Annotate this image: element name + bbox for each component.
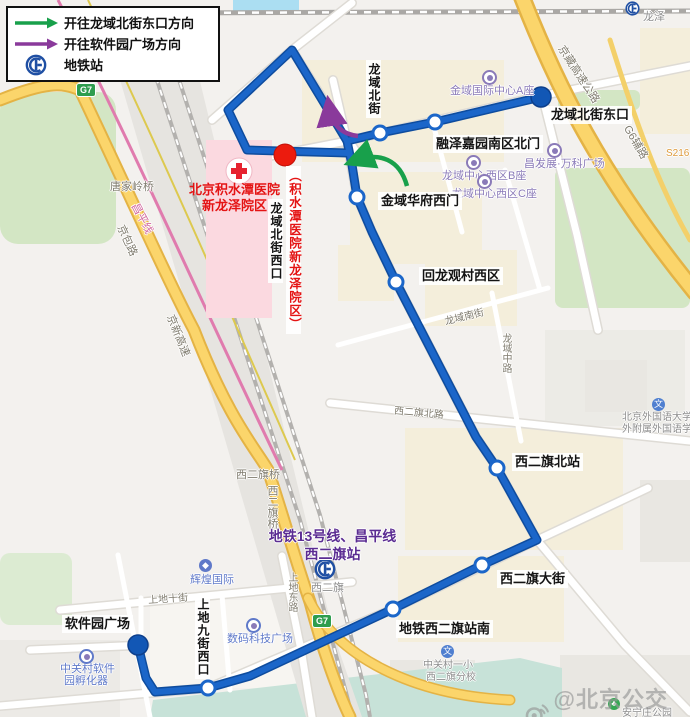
school-icon-zgc: 文 [441,645,454,658]
metro-station-note: 地铁13号线、昌平线 西二旗站 [250,527,415,563]
green-arrow-icon [8,17,64,29]
stop-label-ditiexierqinan: 地铁西二旗站南 [396,620,493,638]
purple-arrow-icon [8,38,64,50]
stop-label-xierqidajie: 西二旗大街 [497,570,568,588]
bg-label-shuma: 数码科技广场 [227,630,293,646]
metro-note-line2: 西二旗站 [250,545,415,563]
bus-route-map: 开往龙域北街东口方向 开往软件园广场方向 地铁站 龙域北街东口 融泽嘉园南区北门… [0,0,690,717]
stop-label-longyubeijie: 龙域北街 [366,60,381,118]
hospital-label-line2: 新龙泽院区 [189,198,280,214]
highlight-stop-marker-hospital [274,144,296,166]
bg-label-tangjialing-bridge: 唐家岭桥 [110,178,154,194]
bg-label-shangdi-east-road: 上地东路 [284,572,299,612]
bg-label-changfazhan: 昌发展·万科广场 [524,155,605,171]
stop-marker-rongzejiayuan [428,115,442,129]
legend-row-metro: 地铁站 [8,54,218,75]
bg-label-shangdi-10th-street: 上地十街 [148,589,189,607]
metro-station-icon-longze [625,1,640,21]
legend-label-west: 开往软件园广场方向 [64,34,181,53]
stop-marker-shangdijiujie [201,681,215,695]
hospital-label-line1: 北京积水潭医院 [189,182,280,198]
hospital-label: 北京积水潭医院 新龙泽院区 [186,181,283,215]
building-icon-changfazhan [547,143,562,158]
building-icon-shuma [246,618,261,633]
stop-marker-xierqibei [490,461,504,475]
stop-marker-xierqidajie [475,558,489,572]
bg-label-s216: S216 [666,148,689,159]
stop-label-rongzejiayuan: 融泽嘉园南区北门 [433,135,543,153]
bg-label-huihuang: 辉煌国际 [190,571,234,587]
bg-label-longyu-c: 龙域中心西区C座 [452,185,537,201]
bg-label-xierqi-bridge-vertical: 西二旗桥 [264,485,280,529]
stop-marker-jinyuhuafu [350,190,364,204]
bg-label-zgc-school-line2: 西二旗分校 [426,668,476,683]
building-icon-jinyu [482,70,497,85]
bg-label-bfs-line2: 外附属外国语学校 [622,420,690,435]
legend-row-west: 开往软件园广场方向 [8,33,218,54]
building-icon-incubator [79,649,94,664]
legend: 开往龙域北街东口方向 开往软件园广场方向 地铁站 [6,6,220,82]
terminus-marker-ruanjianyuan [128,635,148,655]
legend-label-metro: 地铁站 [64,55,103,74]
stop-label-ruanjianyuan: 软件园广场 [62,615,133,633]
watermark: @北京公交集团 [524,682,690,717]
stop-label-xierqibei: 西二旗北站 [512,453,583,471]
metro-note-line1: 地铁13号线、昌平线 [250,527,415,545]
building-icon-longyu-b [466,155,481,170]
school-icon-bfs: 文 [652,398,665,411]
highway-shield-g7-south: G7 [312,614,332,628]
weibo-icon [524,701,550,717]
watermark-text: @北京公交集团 [554,682,690,717]
stop-marker-ditiexierqinan [386,602,400,616]
legend-label-east: 开往龙域北街东口方向 [64,13,194,32]
building-icon-huihuang: ◆ [199,559,212,572]
stop-marker-longyubeijie [373,126,387,140]
bg-label-longyu-middle-road: 龙域中路 [498,333,513,373]
stop-label-shangdijiujie: 上地九街西口 [195,595,210,679]
stop-marker-huilongguancun [389,275,403,289]
stop-label-longyubeijiedongkou: 龙域北街东口 [548,106,632,124]
highway-shield-g7-nw: G7 [76,83,96,97]
metro-logo-icon [8,54,64,76]
hospital-area [206,140,272,318]
bg-label-incubator-line2: 园孵化器 [64,672,108,688]
stop-label-huilongguancun: 回龙观村西区 [419,267,503,285]
legend-row-east: 开往龙域北街东口方向 [8,12,218,33]
bg-label-longze: 龙泽 [643,8,665,24]
bg-label-xierqi-bridge: 西二旗桥 [236,466,280,482]
stop-alt-label-hospital-campus: （积水潭医院新龙泽院区） [286,166,301,334]
stop-label-jinyuhuafu: 金域华府西门 [378,192,462,210]
building-icon-longyu-c [477,174,492,189]
